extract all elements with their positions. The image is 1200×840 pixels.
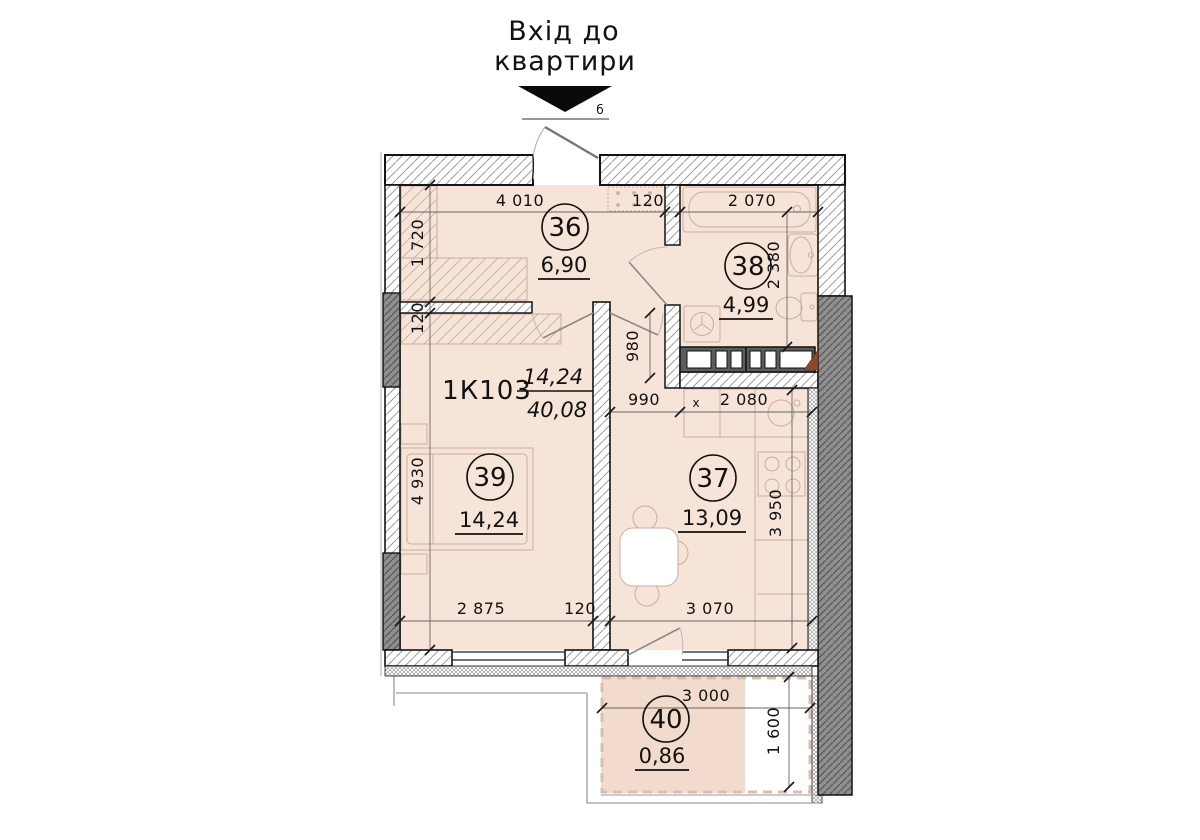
entrance-label-line2: квартири (494, 46, 636, 77)
room-39-number: 39 (473, 463, 506, 493)
dim-bath-width: 2 070 (728, 191, 776, 210)
dim-wall-36-39: 120 (408, 302, 427, 334)
entrance-header: Вхід до квартири б (494, 16, 636, 119)
window-room-39 (452, 652, 565, 660)
left-pilaster-2 (383, 553, 400, 650)
room-37-area: 13,09 (682, 506, 742, 530)
dim-balcony-width: 3 000 (682, 686, 730, 705)
dim-corridor-width: 990 (628, 390, 660, 409)
wall-39-37 (593, 302, 610, 650)
dim-balcony-height: 1 600 (764, 707, 783, 755)
dim-chain-mark: x (692, 396, 699, 410)
dim-wall-39-37: 120 (564, 599, 596, 618)
room-40-area: 0,86 (639, 744, 686, 768)
floor-plan-page: 4 010 120 2 070 1 720 120 4 930 2 380 98… (0, 0, 1200, 840)
door-mark: б (596, 103, 603, 117)
dim-hall-height: 1 720 (408, 219, 427, 267)
bottom-stub-a (385, 650, 452, 666)
top-wall-left (385, 155, 533, 185)
total-area: 40,08 (527, 398, 587, 422)
room-39-area: 14,24 (459, 508, 519, 532)
dim-wall-36-38: 120 (632, 191, 664, 210)
left-pilaster-1 (383, 293, 400, 387)
room-36-area: 6,90 (541, 253, 588, 277)
dim-kitchen-height: 3 950 (766, 489, 785, 537)
vent-block (680, 347, 818, 372)
entrance-label-line1: Вхід до (508, 16, 619, 47)
entrance-door (532, 127, 598, 180)
bottom-stub-b (565, 650, 628, 666)
dim-kitchen-width: 3 070 (686, 599, 734, 618)
dim-corridor-height: 980 (623, 330, 642, 362)
dim-bath-height: 2 380 (764, 241, 783, 289)
dim-room39-width: 2 875 (457, 599, 505, 618)
top-wall-right (600, 155, 845, 185)
bottom-stub-c (728, 650, 818, 666)
neighbour-wall (818, 296, 852, 795)
room-37-number: 37 (696, 464, 729, 494)
bottom-insulation (385, 666, 812, 676)
room-36-number: 36 (548, 213, 581, 243)
room-40-number: 40 (649, 705, 682, 735)
dim-room39-height: 4 930 (408, 457, 427, 505)
wall-36-38-bottom (665, 305, 680, 388)
bath-door-gap-fill (665, 245, 680, 307)
dim-kitchen-top-width: 2 080 (720, 390, 768, 409)
dim-hall-width: 4 010 (496, 191, 544, 210)
kitchen-insulation (808, 388, 818, 650)
room-38-area: 4,99 (723, 293, 770, 317)
right-wall-bath (818, 185, 845, 296)
window-kitchen (682, 652, 728, 660)
room-39-door-gap-fill (532, 302, 593, 313)
living-area: 14,24 (523, 365, 583, 389)
floor-plan: 4 010 120 2 070 1 720 120 4 930 2 380 98… (0, 0, 1200, 840)
room-38-number: 38 (731, 252, 764, 282)
